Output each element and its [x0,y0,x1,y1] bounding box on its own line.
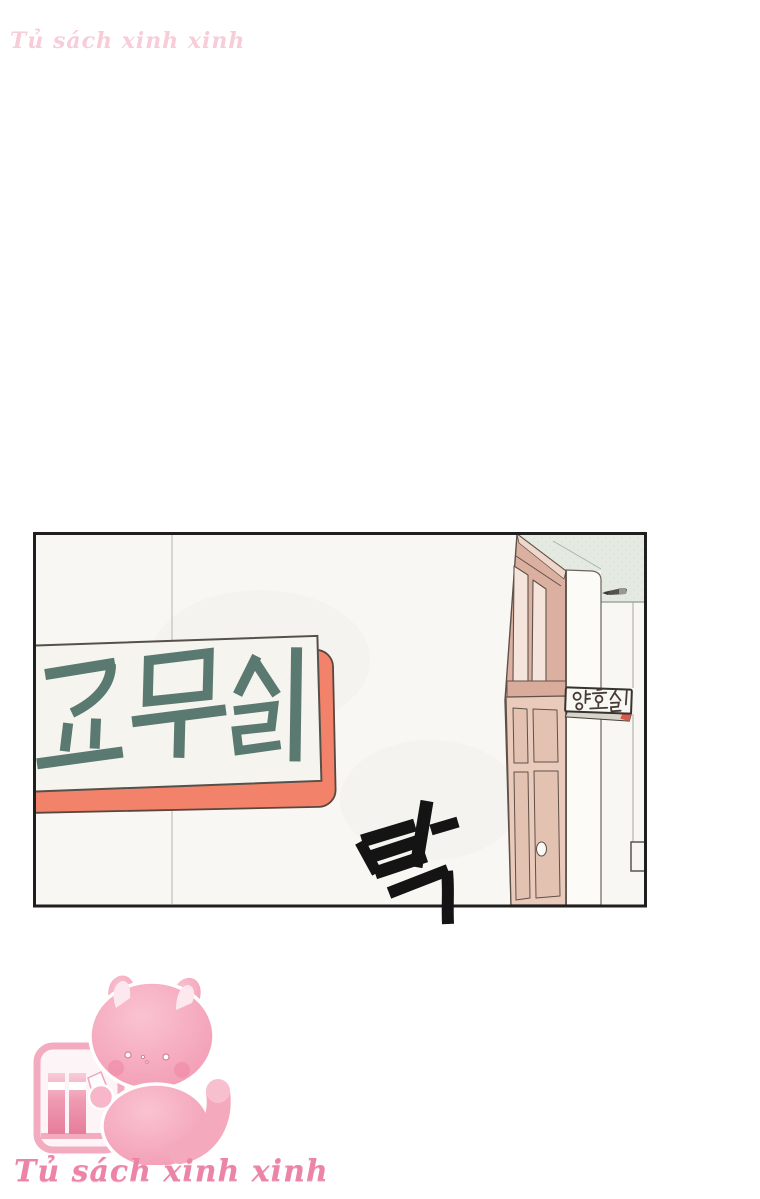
comic-panel [0,500,760,940]
bottom-watermark-text: Tủ sách xinh xinh [14,1154,329,1189]
door-glass-pane [532,580,546,682]
top-watermark-text: Tủ sách xinh xinh [10,28,245,54]
cat-paw [206,1079,230,1103]
door-knob [537,842,547,856]
door-pillar [566,570,601,905]
nurse-office-sign [565,687,633,721]
teachers-office-sign [10,636,336,814]
cat-head [90,982,214,1090]
cat-blush [108,1060,124,1076]
door-panels [513,708,560,900]
door-glass-pane [513,566,528,681]
mascot-logo [28,960,238,1165]
cat-mascot [88,974,230,1165]
cat-blush [174,1062,190,1078]
cat-front-paw [89,1085,113,1109]
office-door [505,534,566,905]
